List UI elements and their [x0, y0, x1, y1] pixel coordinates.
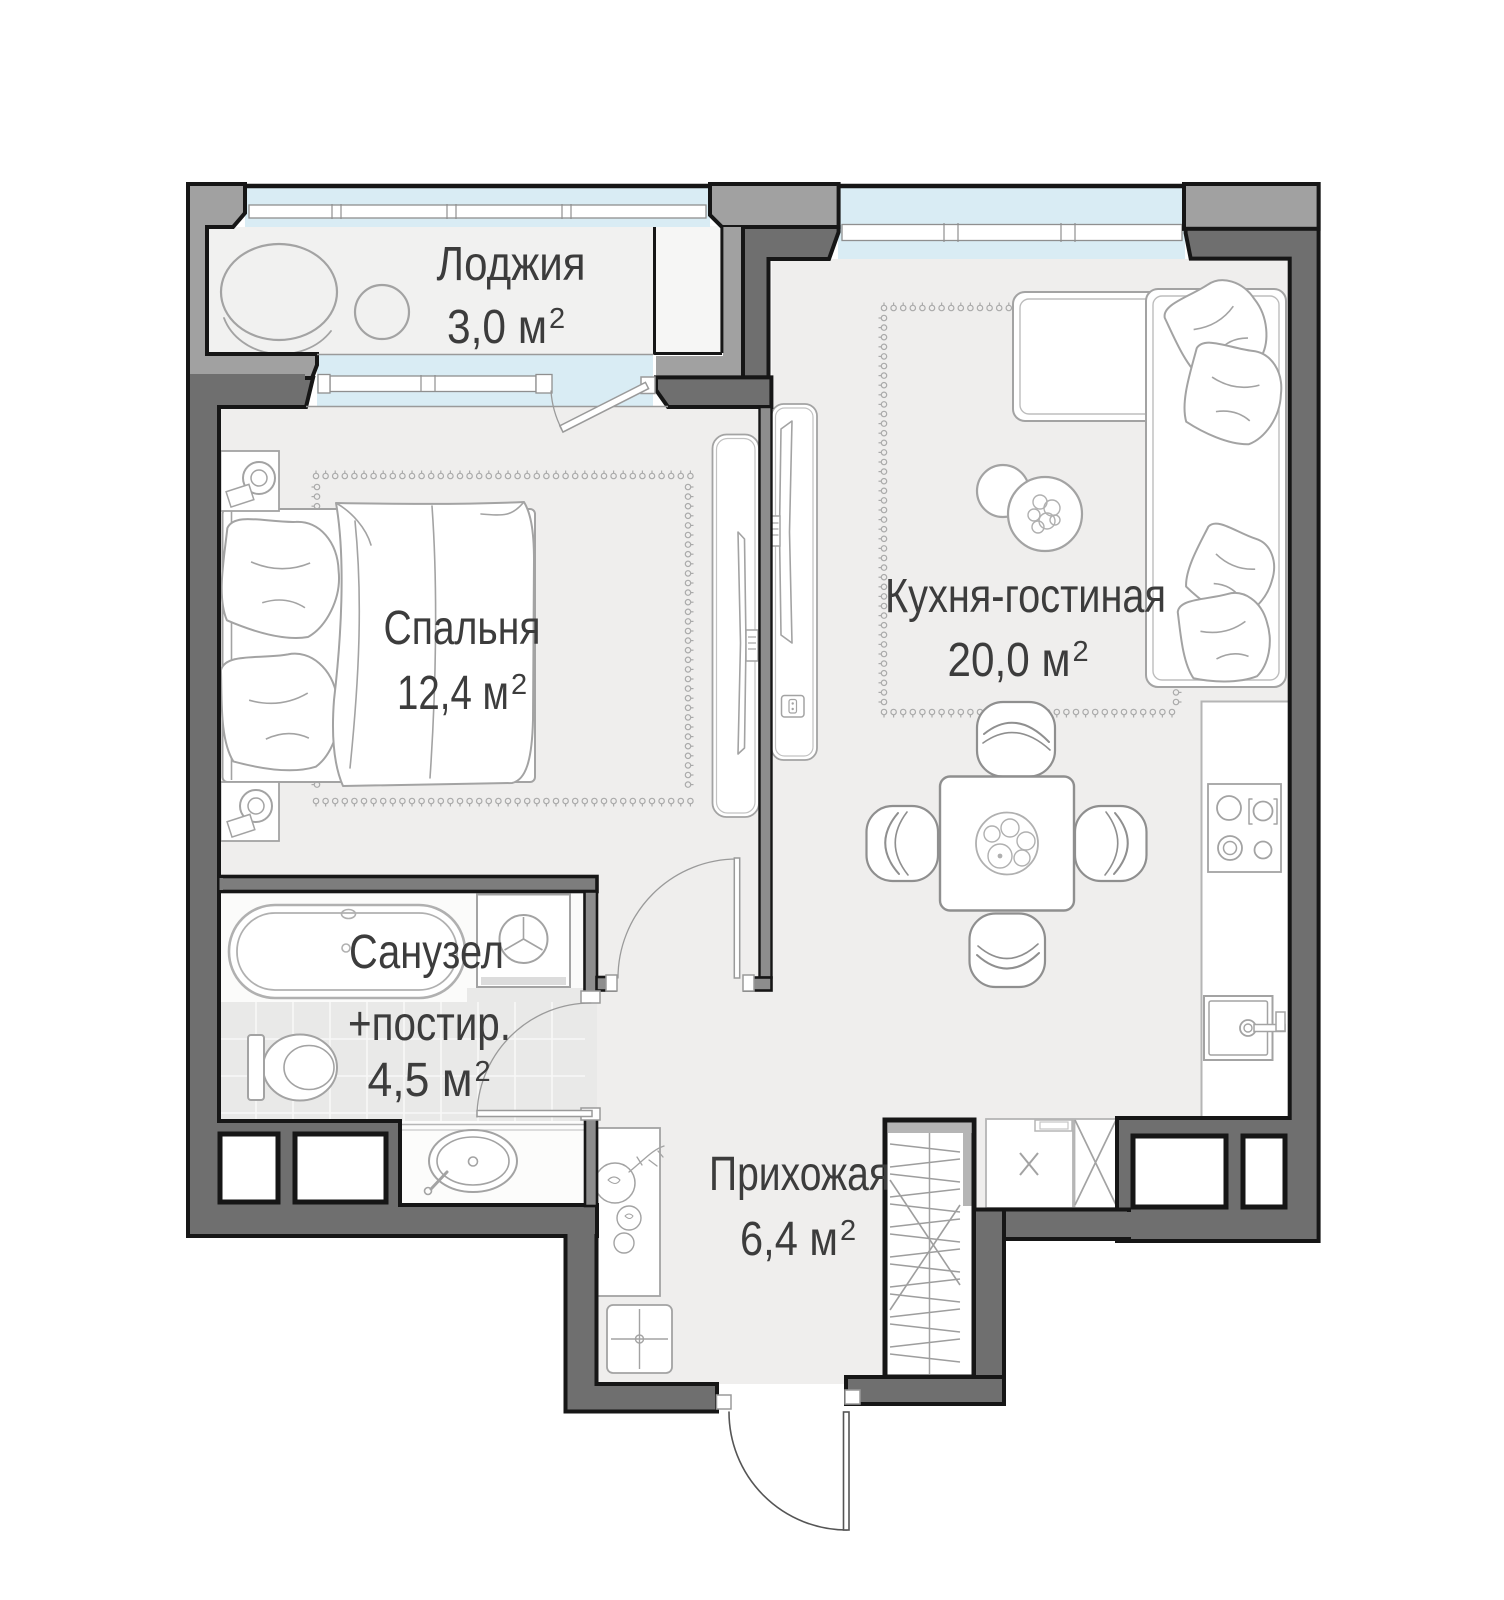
svg-text:Кухня-гостиная: Кухня-гостиная — [885, 570, 1166, 623]
svg-text:3,0 м: 3,0 м — [447, 301, 547, 354]
svg-text:20,0 м: 20,0 м — [948, 634, 1071, 687]
svg-text:Прихожая: Прихожая — [709, 1148, 890, 1201]
svg-text:Санузел: Санузел — [349, 926, 504, 979]
svg-text:2: 2 — [1073, 636, 1089, 668]
svg-text:+постир.: +постир. — [348, 998, 511, 1051]
svg-text:Спальня: Спальня — [384, 602, 541, 655]
svg-text:2: 2 — [475, 1056, 491, 1088]
svg-text:4,5 м: 4,5 м — [368, 1054, 473, 1107]
svg-text:6,4 м: 6,4 м — [740, 1213, 838, 1266]
svg-text:12,4 м: 12,4 м — [397, 667, 509, 720]
svg-text:2: 2 — [549, 303, 565, 335]
svg-text:2: 2 — [840, 1215, 856, 1247]
svg-text:2: 2 — [511, 669, 527, 701]
svg-text:Лоджия: Лоджия — [437, 238, 586, 291]
